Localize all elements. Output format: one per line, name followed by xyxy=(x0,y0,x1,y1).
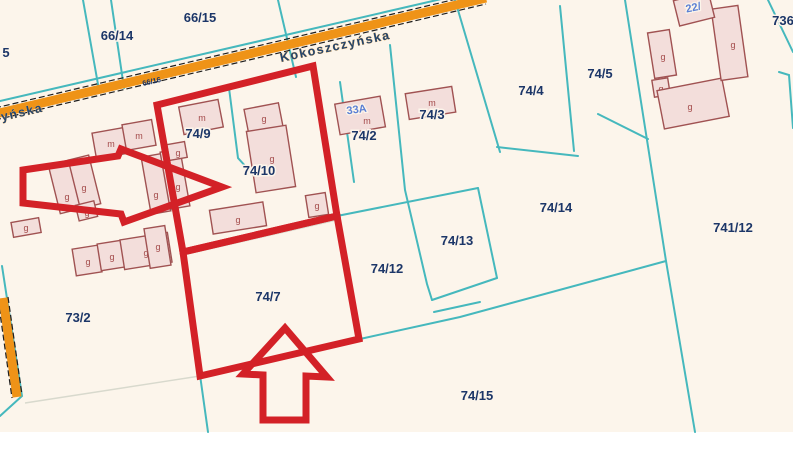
building-label: m xyxy=(135,131,143,141)
parcel-label-74-15: 74/15 xyxy=(461,388,494,403)
building-label: g xyxy=(235,215,240,225)
parcel-label-74-3: 74/3 xyxy=(419,107,444,122)
building-label: m xyxy=(363,116,371,126)
building-label: m xyxy=(198,113,206,123)
building-label: g xyxy=(153,190,158,200)
building-label: m xyxy=(107,139,115,149)
parcel-label-736: 736 xyxy=(772,13,793,28)
building: m xyxy=(122,120,156,151)
parcel-label-74-12: 74/12 xyxy=(371,261,404,276)
parcel-label-74-9: 74/9 xyxy=(185,126,210,141)
cadastral-map-viewport: m m g g g g g g g g g g g m g g g g m m … xyxy=(0,0,793,471)
parcel-label-66-15: 66/15 xyxy=(184,10,217,25)
building-label: g xyxy=(23,223,28,233)
parcel-label-74-14: 74/14 xyxy=(540,200,573,215)
parcel-label-5: 5 xyxy=(2,45,9,60)
building-label: g xyxy=(175,182,180,192)
building-label: g xyxy=(155,242,160,252)
parcel-label-74-10: 74/10 xyxy=(243,163,276,178)
building: g xyxy=(305,193,328,218)
cadastral-map: m m g g g g g g g g g g g m g g g g m m … xyxy=(0,0,793,471)
parcel-label-74-13: 74/13 xyxy=(441,233,474,248)
building-label: g xyxy=(730,40,735,50)
parcel-label-741-12: 741/12 xyxy=(713,220,753,235)
building-label: g xyxy=(314,201,319,211)
building-label: g xyxy=(175,148,180,158)
parcel-label-73-2: 73/2 xyxy=(65,310,90,325)
parcel-label-74-2: 74/2 xyxy=(351,128,376,143)
parcel-label-66-14: 66/14 xyxy=(101,28,134,43)
building-label: g xyxy=(81,183,86,193)
building-label: g xyxy=(261,114,266,124)
building-label: g xyxy=(64,192,69,202)
parcel-label-74-4: 74/4 xyxy=(518,83,544,98)
building-label: g xyxy=(660,52,665,62)
building-label: g xyxy=(109,252,114,262)
building-label: g xyxy=(687,102,692,112)
building-label: g xyxy=(85,257,90,267)
parcel-label-74-7: 74/7 xyxy=(255,289,280,304)
parcel-label-74-5: 74/5 xyxy=(587,66,612,81)
